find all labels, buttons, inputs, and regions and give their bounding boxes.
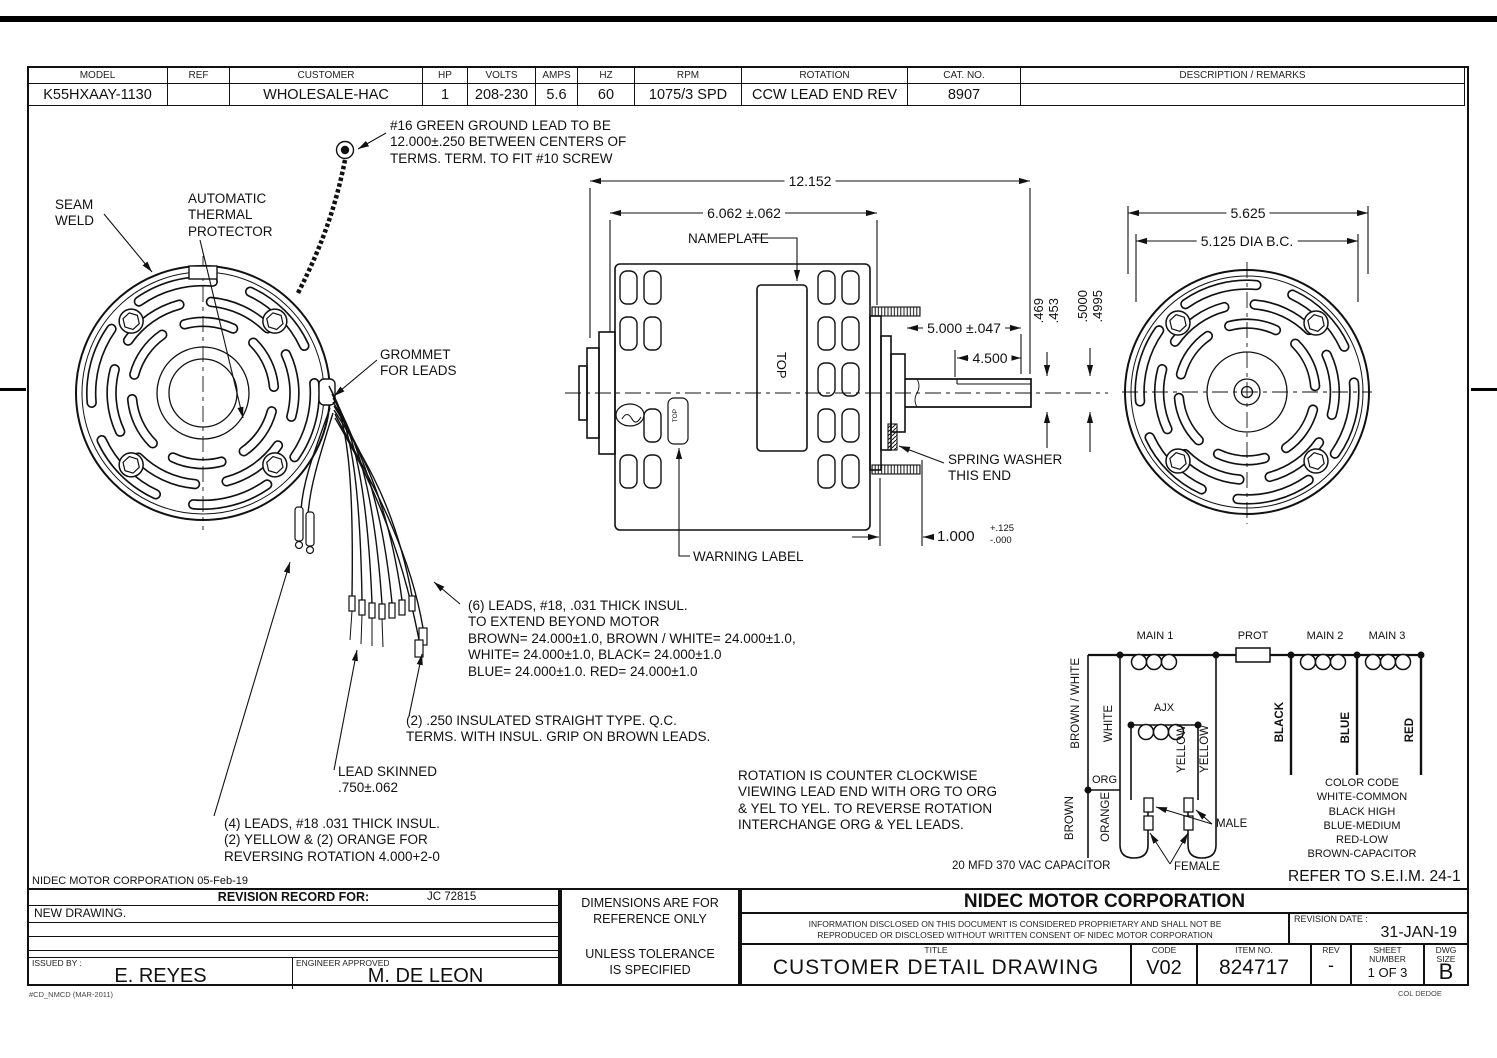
revision-row-4 xyxy=(29,951,558,958)
dim-hub-tol-plus: +.125 xyxy=(990,524,1014,534)
note-warning-label: WARNING LABEL xyxy=(693,549,804,565)
note-thermal-protector: AUTOMATIC THERMAL PROTECTOR xyxy=(188,191,273,240)
title-band: TITLE CUSTOMER DETAIL DRAWING CODE V02 I… xyxy=(742,945,1467,984)
issued-by-cell: ISSUED BY : E. REYES xyxy=(29,958,293,989)
note-leads6: (6) LEADS, #18, .031 THICK INSUL. TO EXT… xyxy=(468,598,796,680)
sch-white: WHITE xyxy=(1103,705,1116,742)
note-capacitor: 20 MFD 370 VAC CAPACITOR xyxy=(952,859,1111,873)
code-value: V02 xyxy=(1132,957,1196,980)
dim-overall: 12.152 xyxy=(785,173,836,189)
item-label: ITEM NO. xyxy=(1198,946,1310,955)
sch-prot: PROT xyxy=(1233,630,1273,643)
drawing-sheet: MODEL REF CUSTOMER HP VOLTS AMPS HZ RPM … xyxy=(0,0,1497,1058)
sheet-value: 1 OF 3 xyxy=(1352,965,1423,980)
note-leads4: (4) LEADS, #18 .031 THICK INSUL. (2) YEL… xyxy=(224,816,440,865)
item-value: 824717 xyxy=(1198,956,1310,980)
company-name: NIDEC MOTOR CORPORATION xyxy=(742,890,1467,914)
dim-body: 6.062 ±.062 xyxy=(703,205,785,221)
note-color-code: COLOR CODE WHITE-COMMON BLACK HIGH BLUE-… xyxy=(1277,776,1447,862)
rev-cell: REV - xyxy=(1312,945,1352,984)
rev-label: REV xyxy=(1312,946,1350,955)
warning-top-label: TOP xyxy=(672,409,679,422)
note-spring-washer: SPRING WASHER THIS END xyxy=(948,452,1062,485)
sch-yellow2: YELLOW xyxy=(1199,725,1212,773)
note-ground-lead: #16 GREEN GROUND LEAD TO BE 12.000±.250 … xyxy=(390,118,626,167)
disclaimer: INFORMATION DISCLOSED ON THIS DOCUMENT I… xyxy=(742,914,1290,943)
revision-date-cell: REVISION DATE : 31-JAN-19 xyxy=(1290,914,1467,943)
sch-female: FEMALE xyxy=(1174,860,1220,874)
issued-by-value: E. REYES xyxy=(29,965,292,988)
revision-date-label: REVISION DATE : xyxy=(1294,915,1368,925)
size-label: DWG SIZE xyxy=(1425,946,1467,965)
sch-male: MALE xyxy=(1216,817,1247,831)
title-value: CUSTOMER DETAIL DRAWING xyxy=(742,956,1130,980)
revision-row-1: NEW DRAWING. xyxy=(29,906,558,923)
revision-date-value: 31-JAN-19 xyxy=(1381,924,1457,942)
tolerance-block: DIMENSIONS ARE FOR REFERENCE ONLY UNLESS… xyxy=(560,888,740,986)
dim-flat-len: 4.500 xyxy=(968,350,1011,366)
nameplate-top-label: TOP xyxy=(774,352,789,379)
sch-red: RED xyxy=(1404,718,1417,742)
dim-hub: 1.000 xyxy=(937,528,975,546)
dim-hub-tol-minus: -.000 xyxy=(990,536,1012,546)
dim-bolt-circle: 5.125 DIA B.C. xyxy=(1197,233,1298,249)
size-cell: DWG SIZE B xyxy=(1425,945,1467,984)
title-cell: TITLE CUSTOMER DETAIL DRAWING xyxy=(742,945,1132,984)
dim-shaft-dia: .5000 .4995 xyxy=(1076,290,1106,323)
signature-row: ISSUED BY : E. REYES ENGINEER APPROVED M… xyxy=(29,958,558,989)
sch-yellow1: YELLOW xyxy=(1176,725,1189,773)
disclaimer-band: INFORMATION DISCLOSED ON THIS DOCUMENT I… xyxy=(742,914,1467,945)
sch-blue: BLUE xyxy=(1340,712,1353,743)
note-grommet: GROMMET FOR LEADS xyxy=(380,347,457,380)
sch-main2: MAIN 2 xyxy=(1300,630,1350,643)
approved-value: M. DE LEON xyxy=(293,965,558,988)
title-block: NIDEC MOTOR CORPORATION INFORMATION DISC… xyxy=(740,888,1469,986)
revision-ref: JC 72815 xyxy=(427,891,476,903)
sch-main3: MAIN 3 xyxy=(1362,630,1412,643)
dim-flat: .469 .453 xyxy=(1032,298,1062,323)
sch-black: BLACK xyxy=(1274,702,1287,742)
revision-header-row: REVISION RECORD FOR: JC 72815 xyxy=(29,890,558,906)
revision-record-label: REVISION RECORD FOR: xyxy=(29,890,558,904)
sch-aux: AJX xyxy=(1144,702,1184,715)
dims-ref-note: DIMENSIONS ARE FOR REFERENCE ONLY xyxy=(562,895,738,928)
note-nameplate: NAMEPLATE xyxy=(688,231,769,247)
sch-brown-white: BROWN / WHITE xyxy=(1070,658,1083,749)
issued-by-label: ISSUED BY : xyxy=(32,959,82,968)
note-lead-skinned: LEAD SKINNED .750±.062 xyxy=(338,764,437,797)
doc-code: COL DEDOE xyxy=(1398,989,1442,998)
note-corp-date: NIDEC MOTOR CORPORATION 05-Feb-19 xyxy=(32,875,248,888)
approved-label: ENGINEER APPROVED xyxy=(296,959,390,968)
note-rotation: ROTATION IS COUNTER CLOCKWISE VIEWING LE… xyxy=(738,768,997,834)
code-cell: CODE V02 xyxy=(1132,945,1198,984)
note-refer-seim: REFER TO S.E.I.M. 24-1 xyxy=(1288,868,1461,887)
note-qc-terms: (2) .250 INSULATED STRAIGHT TYPE. Q.C. T… xyxy=(406,713,710,746)
sheet-cell: SHEET NUMBER 1 OF 3 xyxy=(1352,945,1425,984)
revision-block: REVISION RECORD FOR: JC 72815 NEW DRAWIN… xyxy=(27,888,560,986)
dim-right-overall: 5.625 xyxy=(1226,205,1269,221)
rev-value: - xyxy=(1312,955,1350,976)
approved-cell: ENGINEER APPROVED M. DE LEON xyxy=(293,958,558,989)
note-seam-weld: SEAM WELD xyxy=(55,197,94,230)
sch-org: ORG xyxy=(1092,774,1117,787)
sch-brown: BROWN xyxy=(1064,796,1077,840)
sheet-label: SHEET NUMBER xyxy=(1352,946,1423,965)
form-code: #CD_NMCD (MAR-2011) xyxy=(29,990,113,999)
title-label: TITLE xyxy=(742,946,1130,955)
item-cell: ITEM NO. 824717 xyxy=(1198,945,1312,984)
unless-tolerance-note: UNLESS TOLERANCE IS SPECIFIED xyxy=(562,946,738,979)
revision-row-3 xyxy=(29,937,558,951)
sch-main1: MAIN 1 xyxy=(1130,630,1180,643)
dim-shaft-ext: 5.000 ±.047 xyxy=(923,320,1005,336)
revision-row-2 xyxy=(29,923,558,937)
code-label: CODE xyxy=(1132,946,1196,955)
sch-orange: ORANGE xyxy=(1100,792,1113,842)
